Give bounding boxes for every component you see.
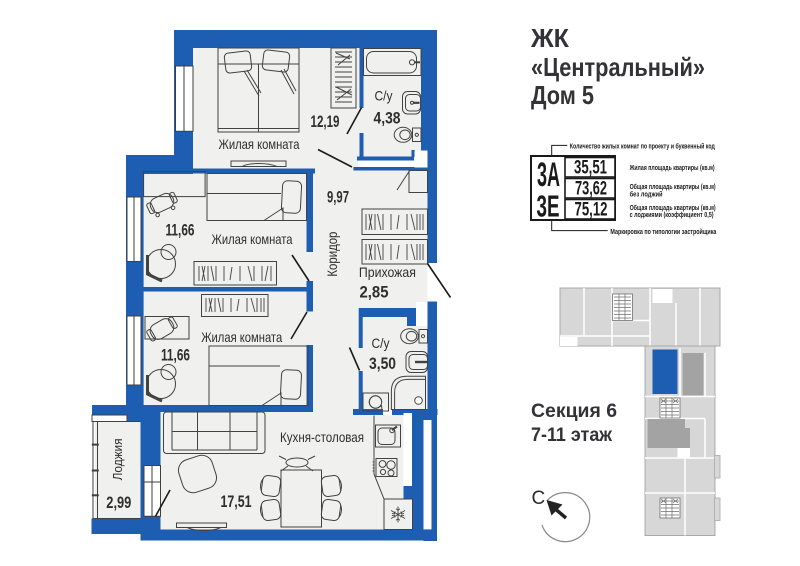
svg-text:73,62: 73,62 (575, 179, 607, 200)
svg-text:С/у: С/у (375, 88, 393, 104)
svg-text:Жилая комната: Жилая комната (201, 329, 282, 345)
svg-text:Жилая комната: Жилая комната (212, 231, 293, 247)
svg-text:Дом 5: Дом 5 (531, 80, 594, 110)
svg-text:Прихожая: Прихожая (359, 264, 416, 280)
svg-text:2,99: 2,99 (106, 494, 131, 512)
svg-text:17,51: 17,51 (221, 493, 252, 511)
svg-text:75,12: 75,12 (575, 200, 608, 221)
svg-text:35,51: 35,51 (574, 158, 607, 179)
svg-text:Лоджия: Лоджия (110, 438, 125, 480)
svg-text:Жилая комната: Жилая комната (219, 136, 300, 152)
svg-text:без лоджий: без лоджий (630, 190, 663, 199)
svg-text:С: С (532, 488, 546, 509)
svg-text:с лоджиями (коэффициент 0,5): с лоджиями (коэффициент 0,5) (630, 210, 714, 219)
svg-text:3,50: 3,50 (369, 355, 396, 373)
svg-text:Кухня-столовая: Кухня-столовая (280, 429, 364, 445)
svg-text:11,66: 11,66 (161, 347, 190, 365)
svg-text:9,97: 9,97 (327, 189, 349, 207)
svg-text:Коридор: Коридор (324, 231, 340, 276)
svg-text:С/у: С/у (372, 335, 390, 351)
svg-text:Жилая площадь квартиры (кв.м): Жилая площадь квартиры (кв.м) (629, 163, 715, 172)
svg-text:«Центральный»: «Центральный» (531, 52, 705, 82)
svg-text:3Е: 3Е (537, 189, 560, 224)
svg-text:12,19: 12,19 (311, 113, 340, 131)
svg-text:Секция 6: Секция 6 (531, 401, 617, 422)
svg-text:11,66: 11,66 (166, 222, 195, 240)
svg-text:ЖК: ЖК (530, 23, 569, 53)
svg-text:4,38: 4,38 (374, 110, 401, 128)
svg-text:Количество жилых комнат по про: Количество жилых комнат по проекту и бук… (570, 141, 715, 150)
svg-text:Маркировка по типологии застро: Маркировка по типологии застройщика (610, 227, 717, 236)
svg-text:7-11 этаж: 7-11 этаж (531, 425, 612, 446)
svg-text:2,85: 2,85 (360, 284, 389, 302)
